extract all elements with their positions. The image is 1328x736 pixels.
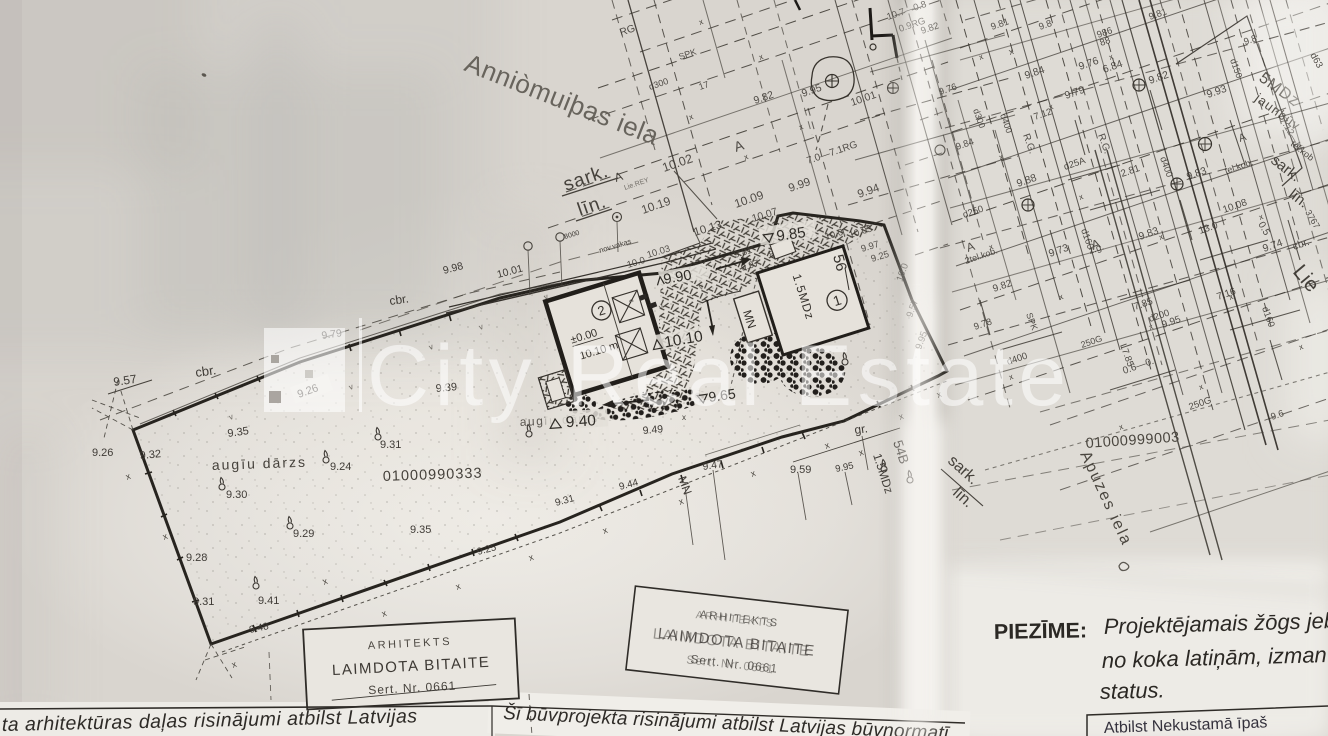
svg-text:City Real Estate: City Real Estate [367, 328, 1072, 424]
svg-text:9.24: 9.24 [330, 461, 351, 473]
svg-text:9.29: 9.29 [293, 528, 314, 540]
svg-text:status.: status. [1099, 677, 1164, 704]
svg-text:augīu dārzs: augīu dārzs [212, 454, 308, 473]
svg-text:9.30: 9.30 [226, 489, 247, 501]
svg-text:9.32: 9.32 [139, 448, 161, 462]
svg-text:9.28: 9.28 [186, 552, 207, 564]
svg-text:cbr.: cbr. [388, 291, 409, 308]
svg-text:9.59: 9.59 [790, 464, 811, 476]
svg-text:9.35: 9.35 [410, 524, 431, 536]
svg-text:9.49: 9.49 [642, 423, 664, 437]
svg-text:9.26: 9.26 [92, 447, 113, 459]
svg-text:9.41: 9.41 [258, 595, 279, 607]
svg-text:9.31: 9.31 [193, 596, 214, 608]
svg-text:cbr.: cbr. [194, 362, 217, 380]
svg-text:9.31: 9.31 [380, 439, 401, 451]
svg-text:PIEZĪME:: PIEZĪME: [994, 618, 1088, 644]
